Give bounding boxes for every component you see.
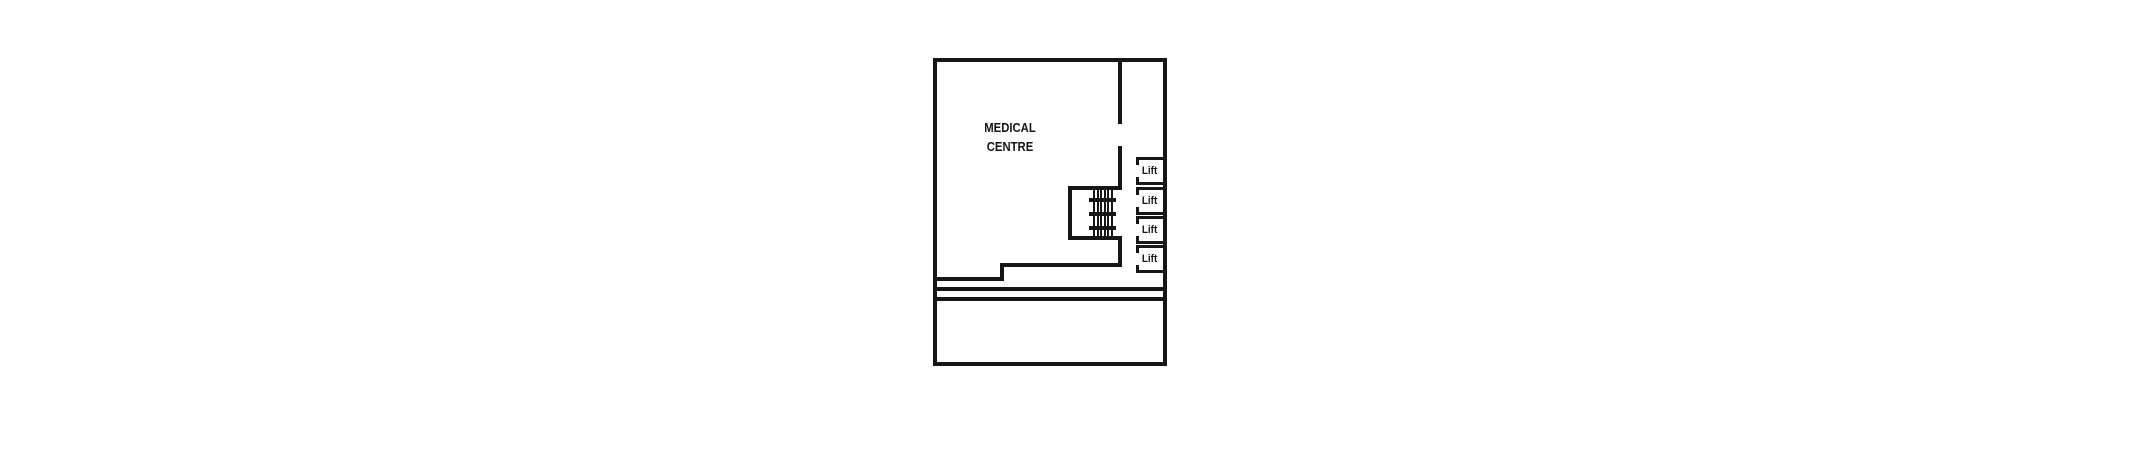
lift-door-jamb-top — [1136, 160, 1139, 165]
lift-label: Lift — [1142, 196, 1157, 207]
lift-door-jamb-bottom — [1136, 207, 1139, 212]
stair-tread-line — [1107, 190, 1109, 236]
lift-label: Lift — [1142, 225, 1157, 236]
corridor-wall-upper — [1118, 62, 1122, 124]
lift-door-jamb-top — [1136, 248, 1139, 253]
medical-centre-label-line1: MEDICAL — [953, 118, 1066, 137]
deck-plan-canvas: MEDICAL CENTRE Lift Lift Lift Lift — [0, 0, 2151, 452]
lift-door-jamb-top — [1136, 190, 1139, 195]
stair-landing-bar — [1089, 226, 1116, 230]
lift-label: Lift — [1142, 254, 1157, 265]
section-divider-line-upper — [937, 287, 1163, 291]
section-divider-line-lower — [937, 297, 1163, 301]
lift-label: Lift — [1142, 166, 1157, 177]
room-bottom-wall-right — [1000, 263, 1122, 267]
corridor-wall-lower — [1118, 146, 1122, 190]
lift-door-jamb-bottom — [1136, 265, 1139, 270]
stair-tread-line — [1093, 190, 1095, 236]
lift-shaft-4: Lift — [1136, 245, 1163, 273]
stair-enclosure-top-wall — [1068, 186, 1122, 190]
room-bottom-wall-left — [937, 277, 1004, 281]
medical-centre-label-line2: CENTRE — [953, 137, 1066, 156]
stair-tread-line — [1097, 190, 1099, 236]
lift-door-jamb-bottom — [1136, 177, 1139, 182]
stair-tread-line — [1111, 190, 1113, 236]
stair-enclosure-left-wall — [1068, 186, 1072, 240]
stair-tread-line — [1100, 190, 1102, 236]
stair-tread-line — [1104, 190, 1106, 236]
stair-landing-bar — [1089, 212, 1116, 216]
stair-enclosure-bottom-wall — [1068, 236, 1122, 240]
lift-door-jamb-bottom — [1136, 236, 1139, 241]
stair-landing-bar — [1089, 198, 1116, 202]
deck-section-outline: MEDICAL CENTRE Lift Lift Lift Lift — [933, 58, 1167, 366]
lift-door-jamb-top — [1136, 219, 1139, 224]
staircase-symbol — [937, 62, 1163, 362]
lift-shaft-1: Lift — [1136, 157, 1163, 185]
medical-centre-label: MEDICAL CENTRE — [953, 118, 1066, 156]
lift-shaft-2: Lift — [1136, 187, 1163, 215]
lift-shaft-3: Lift — [1136, 216, 1163, 244]
